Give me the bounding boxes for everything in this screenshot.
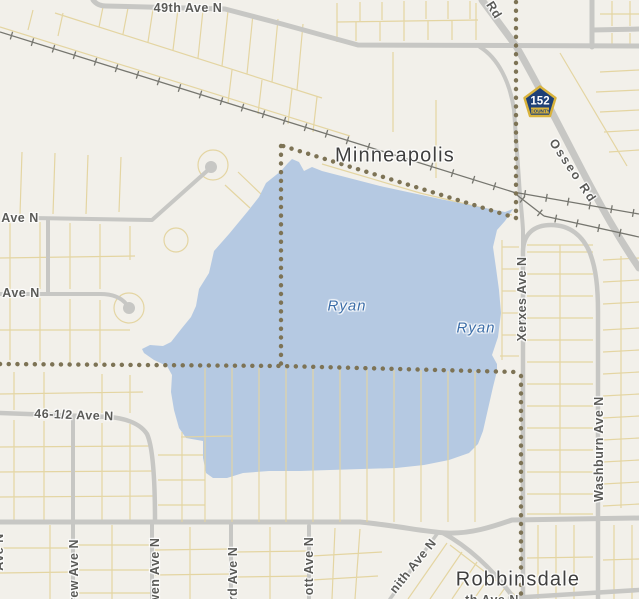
cul-de-sac-bulb [123, 302, 135, 314]
cul-de-sac-bulb [205, 161, 217, 173]
shield-banner-text: COUNTY [530, 108, 549, 113]
map-canvas[interactable]: 152 COUNTY 49th Ave N Ave N Ave N 46-1/2… [0, 0, 639, 599]
shield-route-number: 152 [530, 96, 549, 108]
county-route-shield: 152 COUNTY [523, 85, 557, 119]
